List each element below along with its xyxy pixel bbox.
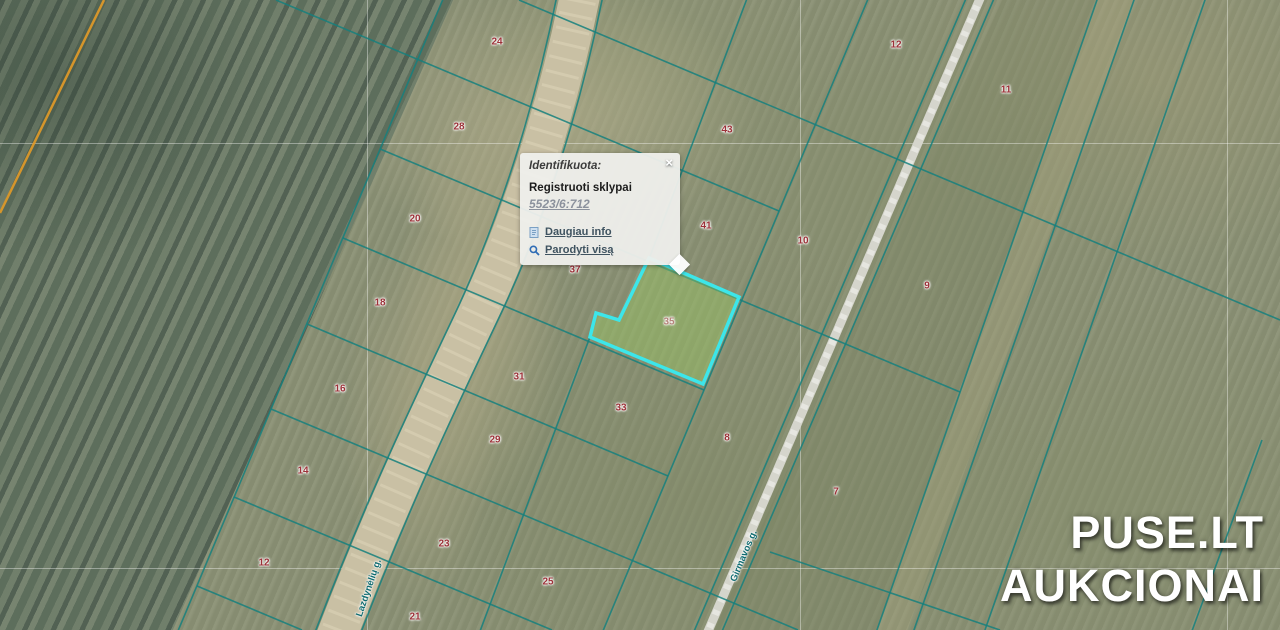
orange-boundary-line: [0, 0, 104, 213]
parcel-number-label: 29: [489, 435, 500, 446]
parcel-number-label: 18: [374, 298, 385, 309]
watermark: PUSE.LT AUKCIONAI: [1000, 506, 1264, 612]
parcel-number-label: 11: [1001, 85, 1012, 96]
parcel-number-label: 12: [258, 558, 269, 569]
popup-title: Identifikuota:: [529, 160, 671, 172]
watermark-line2: AUKCIONAI: [1000, 559, 1264, 612]
parcel-number-label: 20: [409, 214, 420, 225]
parcel-number-label: 43: [721, 125, 732, 136]
parcel-number-label: 10: [797, 236, 808, 247]
close-icon[interactable]: ×: [665, 156, 673, 169]
parcel-number-label: 16: [334, 384, 345, 395]
map-canvas[interactable]: 24 12 11 28 43 20 41 10 37 9 18 35 31 16…: [0, 0, 1280, 630]
parcel-number-label: 14: [297, 466, 308, 477]
parcel-number-label: 31: [513, 372, 524, 383]
parcel-number-label: 35: [663, 317, 674, 328]
parcel-number-label: 23: [438, 539, 449, 550]
watermark-line1: PUSE.LT: [1000, 506, 1264, 559]
parcel-number-label: 8: [724, 433, 730, 444]
parcel-number-label: 9: [924, 281, 930, 292]
parcel-id-link[interactable]: 5523/6:712: [529, 197, 590, 211]
identify-popup: Identifikuota: × Registruoti sklypai 552…: [520, 153, 680, 265]
parcel-number-label: 25: [542, 577, 553, 588]
parcel-number-label: 33: [615, 403, 626, 414]
daugiau-info-link[interactable]: Daugiau info: [545, 226, 612, 238]
parcel-number-label: 41: [700, 221, 711, 232]
info-page-icon: [529, 227, 540, 238]
parcel-number-label: 12: [890, 40, 901, 51]
parcel-number-label: 24: [491, 37, 502, 48]
parodyti-visa-link[interactable]: Parodyti visą: [545, 244, 613, 256]
dirt-road: [332, 0, 582, 630]
magnifier-icon: [529, 245, 540, 256]
parcel-number-label: 21: [409, 612, 420, 623]
parcel-number-label: 7: [833, 487, 839, 498]
parcel-number-label: 37: [569, 265, 580, 276]
popup-section-title: Registruoti sklypai: [529, 182, 671, 194]
parcel-number-label: 28: [453, 122, 464, 133]
